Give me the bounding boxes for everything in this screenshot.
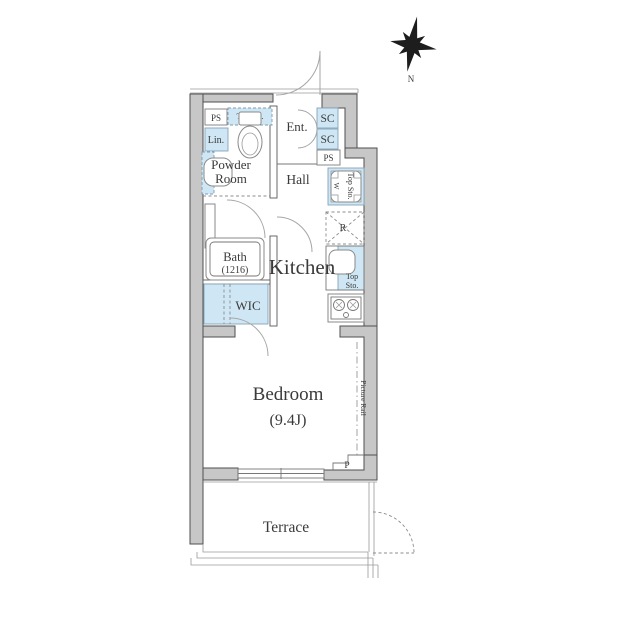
picture-rail-label: Picture Rail	[359, 380, 368, 416]
room-label-powder-room: Powder Room	[211, 157, 251, 186]
pipe-space-mid-right: PS	[317, 150, 340, 165]
ps-top-left-label: PS	[211, 113, 221, 123]
compass-rose-icon	[386, 13, 442, 76]
linen-storage: Lin.	[205, 128, 228, 151]
bedroom-window	[238, 468, 324, 479]
washing-machine-area: W Top Sto.	[328, 168, 364, 205]
ps-mid-right-label: PS	[323, 153, 333, 163]
compass-north-label: N	[408, 74, 415, 84]
bath-size-label: (1216)	[222, 265, 249, 276]
room-label-terrace: Terrace	[263, 519, 309, 536]
floor-plan: N PS Top Sto.	[0, 0, 640, 639]
terrace-area: Terrace	[191, 482, 414, 578]
shoe-closet-lower-label: SC	[320, 134, 334, 146]
shoe-closet-upper-label: SC	[320, 113, 334, 125]
room-label-bath: Bath	[223, 250, 247, 264]
floor-plan-page: N PS Top Sto.	[0, 0, 640, 639]
toilet-icon	[238, 112, 262, 158]
pipe-space-bedroom-label: P	[344, 461, 349, 471]
walk-in-closet: WIC	[204, 284, 268, 356]
refrigerator-label: R	[340, 223, 347, 234]
top-storage-kitchen-label-2: Sto.	[346, 281, 359, 290]
washer-label: W	[332, 182, 341, 190]
linen-label: Lin.	[208, 135, 224, 146]
room-label-entrance: Ent.	[286, 119, 307, 134]
svg-text:Powder: Powder	[211, 157, 251, 172]
room-label-kitchen: Kitchen	[269, 255, 336, 279]
pipe-space-top-left: PS	[205, 109, 227, 125]
refrigerator-space: R	[326, 212, 364, 244]
hall-door	[277, 217, 312, 252]
svg-text:Room: Room	[215, 171, 247, 186]
terrace-gate-door	[373, 512, 414, 553]
upper-slab-lines	[190, 89, 358, 93]
bedroom-size-label: (9.4J)	[270, 412, 307, 429]
bath-room: Bath (1216)	[205, 200, 265, 280]
room-label-bedroom: Bedroom	[253, 384, 324, 405]
bedroom-area: Bedroom (9.4J) Picture Rail P	[253, 342, 368, 471]
room-label-wic: WIC	[235, 298, 260, 313]
stove-icon	[328, 294, 364, 322]
room-label-hall: Hall	[286, 172, 309, 187]
top-storage-kitchen-label-1: Top	[346, 272, 358, 281]
top-storage-washer-label: Top Sto.	[346, 173, 355, 200]
entrance-door	[276, 51, 320, 95]
